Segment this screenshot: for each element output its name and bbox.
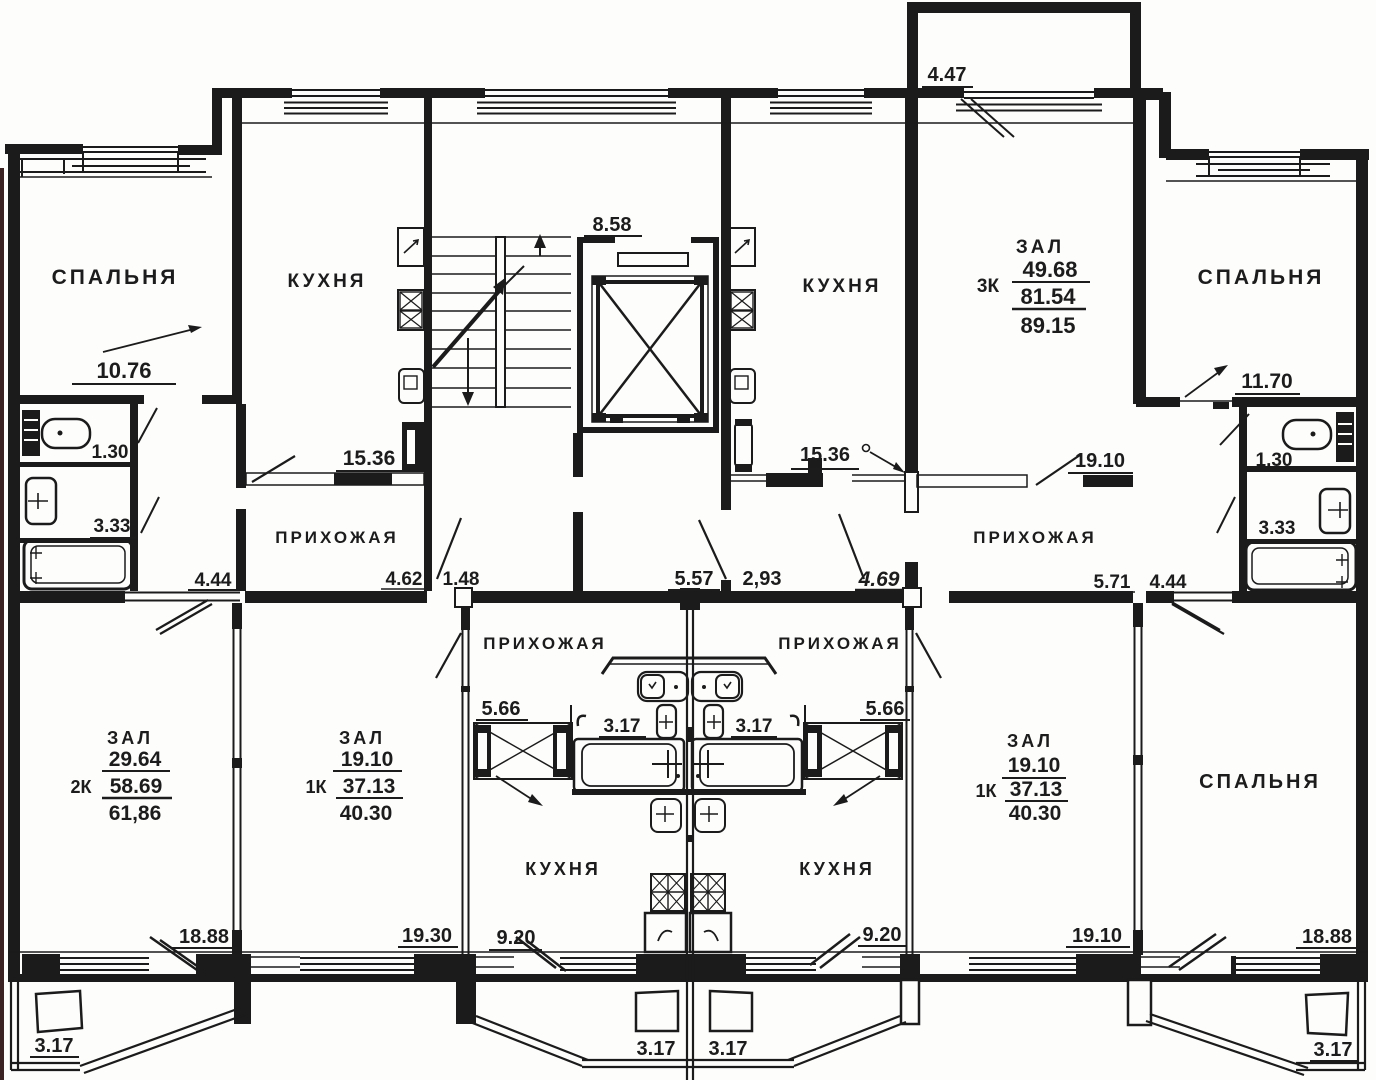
svg-text:3.17: 3.17: [736, 716, 773, 737]
svg-text:2К: 2К: [71, 777, 93, 797]
svg-text:5.71: 5.71: [1094, 572, 1131, 593]
svg-text:3.17: 3.17: [35, 1035, 74, 1057]
svg-text:4.69: 4.69: [858, 568, 900, 591]
svg-text:ЗАЛ: ЗАЛ: [1007, 731, 1053, 751]
svg-text:1К: 1К: [306, 777, 328, 797]
svg-text:1.30: 1.30: [92, 442, 129, 463]
svg-text:11.70: 11.70: [1241, 370, 1292, 393]
svg-text:89.15: 89.15: [1020, 313, 1075, 338]
svg-text:10.76: 10.76: [96, 358, 151, 383]
svg-text:КУХНЯ: КУХНЯ: [799, 859, 875, 879]
svg-text:18.88: 18.88: [179, 926, 229, 948]
svg-text:КУХНЯ: КУХНЯ: [288, 271, 367, 292]
svg-text:ПРИХОЖАЯ: ПРИХОЖАЯ: [483, 634, 607, 653]
svg-text:ПРИХОЖАЯ: ПРИХОЖАЯ: [778, 634, 902, 653]
svg-text:49.68: 49.68: [1022, 257, 1077, 282]
svg-text:58.69: 58.69: [110, 775, 163, 798]
svg-text:5.66: 5.66: [482, 698, 521, 720]
svg-text:ЗАЛ: ЗАЛ: [1016, 237, 1064, 258]
svg-text:4.62: 4.62: [386, 569, 423, 590]
svg-text:4.44: 4.44: [195, 570, 232, 591]
svg-text:37.13: 37.13: [1010, 778, 1063, 801]
svg-text:3.17: 3.17: [1314, 1039, 1353, 1061]
svg-text:29.64: 29.64: [109, 748, 162, 771]
svg-text:ПРИХОЖАЯ: ПРИХОЖАЯ: [275, 528, 399, 547]
svg-text:4.47: 4.47: [928, 64, 967, 86]
svg-text:9.20: 9.20: [497, 927, 536, 949]
svg-text:СПАЛЬНЯ: СПАЛЬНЯ: [52, 266, 179, 289]
svg-text:15.36: 15.36: [343, 447, 396, 470]
svg-text:СПАЛЬНЯ: СПАЛЬНЯ: [1198, 266, 1325, 289]
svg-text:3.33: 3.33: [1259, 518, 1296, 539]
svg-text:4.44: 4.44: [1150, 572, 1187, 593]
svg-text:19.10: 19.10: [1072, 925, 1122, 947]
svg-text:3К: 3К: [977, 276, 1000, 297]
svg-text:5.57: 5.57: [675, 568, 714, 590]
svg-text:40.30: 40.30: [340, 802, 393, 825]
svg-text:18.88: 18.88: [1302, 926, 1352, 948]
svg-text:ЗАЛ: ЗАЛ: [339, 728, 385, 748]
svg-text:КУХНЯ: КУХНЯ: [525, 859, 601, 879]
svg-text:КУХНЯ: КУХНЯ: [803, 276, 882, 297]
svg-text:1К: 1К: [976, 781, 998, 801]
svg-text:3.17: 3.17: [709, 1038, 748, 1060]
svg-text:8.58: 8.58: [593, 214, 632, 236]
svg-text:1.48: 1.48: [443, 569, 480, 590]
svg-text:19.10: 19.10: [341, 748, 394, 771]
svg-text:СПАЛЬНЯ: СПАЛЬНЯ: [1199, 771, 1321, 793]
svg-text:3.33: 3.33: [94, 516, 131, 537]
svg-text:61,86: 61,86: [109, 802, 162, 825]
svg-text:40.30: 40.30: [1009, 802, 1062, 825]
svg-text:ПРИХОЖАЯ: ПРИХОЖАЯ: [973, 528, 1097, 547]
svg-text:81.54: 81.54: [1020, 284, 1076, 309]
svg-text:9.20: 9.20: [863, 924, 902, 946]
svg-text:19.30: 19.30: [402, 925, 452, 947]
svg-text:15.36: 15.36: [800, 444, 850, 466]
svg-text:5.66: 5.66: [866, 698, 905, 720]
svg-text:3.17: 3.17: [637, 1038, 676, 1060]
svg-text:2,93: 2,93: [743, 568, 782, 590]
svg-text:37.13: 37.13: [343, 775, 396, 798]
svg-text:1.30: 1.30: [1256, 450, 1293, 471]
svg-text:ЗАЛ: ЗАЛ: [107, 728, 153, 748]
svg-text:3.17: 3.17: [604, 716, 641, 737]
svg-text:19.10: 19.10: [1008, 754, 1061, 777]
svg-text:19.10: 19.10: [1075, 450, 1125, 472]
